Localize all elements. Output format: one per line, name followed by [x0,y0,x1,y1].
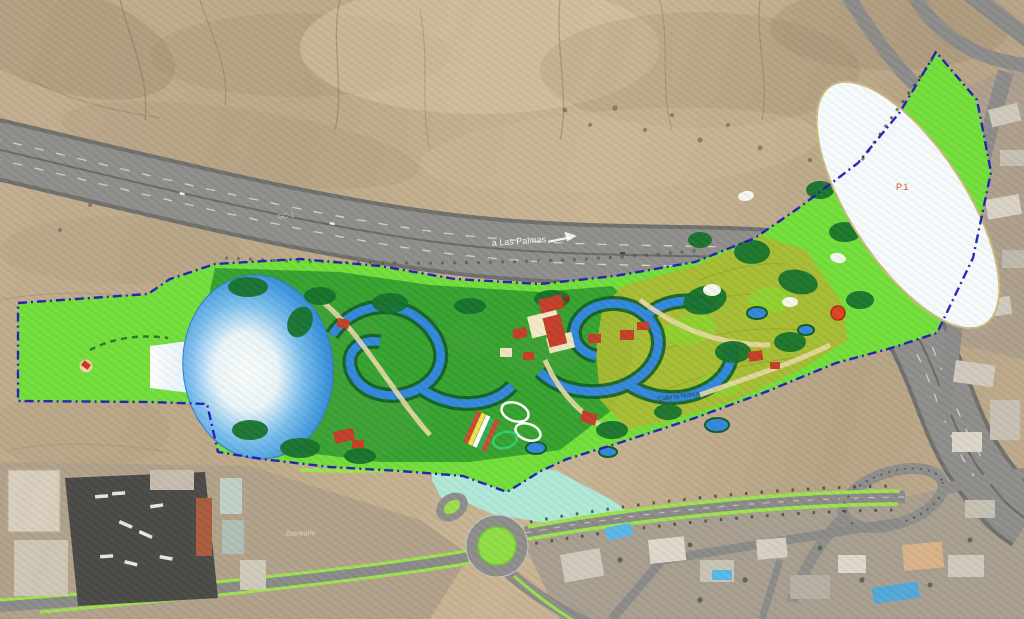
roundabout [466,515,528,577]
site-marker-west [80,360,93,373]
parking-area-label: P.1 [896,182,908,192]
map-canvas: a Las Palmas GC-1 [0,0,1024,619]
ground-place-label: Balneario [286,530,316,538]
site-plan-map: a Las Palmas GC-1 [0,0,1024,619]
site-marker-east [831,306,845,320]
truck-yard [65,472,218,606]
